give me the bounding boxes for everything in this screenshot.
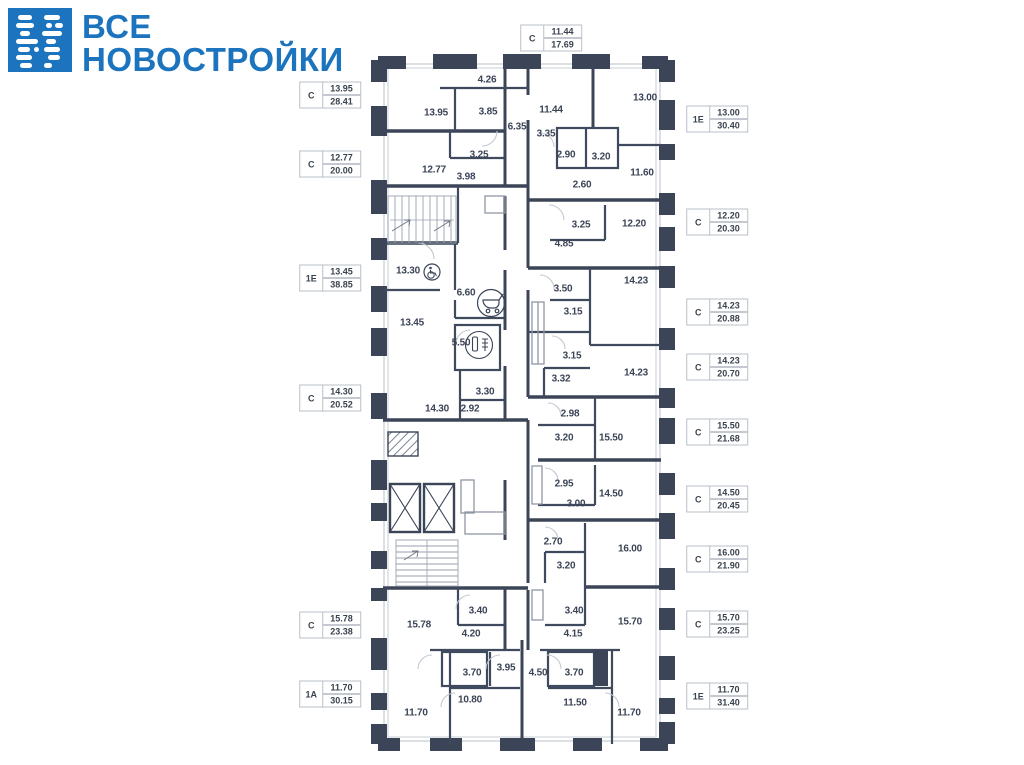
room-area-label: 14.30 (425, 404, 449, 415)
apartment-living-area: 11.44 (544, 26, 581, 39)
apartment-living-area: 13.45 (323, 266, 360, 279)
room-area-label: 16.00 (618, 544, 642, 555)
room-area-label: 3.15 (563, 351, 582, 362)
room-area-label: 4.15 (564, 629, 583, 640)
apartment-total-area: 31.40 (710, 697, 747, 709)
apartment-total-area: 30.40 (710, 120, 747, 132)
room-area-label: 15.70 (618, 617, 642, 628)
room-area-label: 11.60 (630, 168, 653, 179)
room-area-label: 13.30 (396, 266, 420, 277)
room-area-label: 11.50 (563, 698, 586, 709)
room-area-label: 3.20 (557, 561, 576, 572)
stairs-lower (396, 540, 458, 586)
room-area-label: 2.90 (557, 150, 576, 161)
room-area-label: 3.15 (564, 307, 583, 318)
apartment-total-area: 20.30 (710, 223, 747, 235)
apartment-living-area: 11.70 (323, 682, 360, 695)
apartment-areas: 11.7031.40 (710, 684, 747, 709)
apartment-living-area: 15.50 (710, 420, 747, 433)
room-area-label: 6.60 (457, 288, 476, 299)
apartment-living-area: 12.77 (323, 152, 360, 165)
room-area-label: 4.26 (478, 75, 497, 86)
room-area-label: 3.98 (457, 172, 476, 183)
apartment-living-area: 16.00 (710, 547, 747, 560)
apartment-total-area: 38.85 (323, 279, 360, 291)
apartment-label[interactable]: С15.7023.25 (686, 611, 748, 638)
apartment-total-area: 23.38 (323, 626, 360, 638)
apartment-total-area: 21.90 (710, 560, 747, 572)
apartment-label[interactable]: С13.9528.41 (299, 82, 361, 109)
room-area-label: 14.23 (624, 368, 648, 379)
apartment-living-area: 15.70 (710, 612, 747, 625)
apartment-type: С (687, 355, 710, 380)
apartment-type: С (687, 210, 710, 235)
room-area-label: 2.92 (461, 404, 480, 415)
stroller-icon (478, 290, 505, 317)
wheelchair-icon (424, 264, 440, 280)
room-area-label: 6.35 (508, 122, 527, 133)
room-area-label: 14.23 (624, 276, 648, 287)
apartment-total-area: 17.69 (544, 39, 581, 51)
apartment-label[interactable]: 1А11.7030.15 (299, 681, 361, 708)
apartment-living-area: 15.78 (323, 613, 360, 626)
apartment-areas: 14.5020.45 (710, 487, 747, 512)
stairs-upper (388, 196, 456, 243)
page: ВСЕ НОВОСТРОЙКИ (0, 0, 1024, 765)
floor-plan (0, 0, 1024, 765)
elevator-shafts (390, 484, 454, 532)
apartment-total-area: 20.45 (710, 500, 747, 512)
apartment-type: 1А (300, 682, 323, 707)
room-area-label: 13.45 (400, 318, 424, 329)
room-area-label: 3.00 (567, 499, 586, 510)
room-area-label: 4.50 (529, 668, 548, 679)
apartment-label[interactable]: 1Е11.7031.40 (686, 683, 748, 710)
apartment-label[interactable]: С12.7720.00 (299, 151, 361, 178)
room-area-label: 3.25 (572, 220, 591, 231)
apartment-label[interactable]: С15.7823.38 (299, 612, 361, 639)
apartment-type: С (300, 386, 323, 411)
apartment-total-area: 30.15 (323, 695, 360, 707)
apartment-type: С (687, 300, 710, 325)
apartment-type: С (687, 420, 710, 445)
room-area-label: 3.70 (463, 668, 482, 679)
room-area-label: 14.50 (599, 489, 623, 500)
room-area-label: 2.98 (561, 409, 580, 420)
apartment-areas: 11.7030.15 (323, 682, 360, 707)
apartment-areas: 14.2320.70 (710, 355, 747, 380)
room-area-label: 3.20 (555, 433, 574, 444)
room-area-label: 3.70 (565, 668, 584, 679)
hatched-shaft (388, 432, 418, 456)
apartment-type: 1Е (687, 107, 710, 132)
apartment-type: С (300, 83, 323, 108)
apartment-type: С (521, 26, 544, 51)
room-area-label: 2.95 (555, 479, 574, 490)
apartment-total-area: 20.52 (323, 399, 360, 411)
room-area-label: 12.77 (422, 165, 446, 176)
room-area-label: 4.85 (555, 239, 574, 250)
apartment-label[interactable]: 1Е13.4538.85 (299, 265, 361, 292)
wall-block (594, 650, 608, 686)
apartment-label[interactable]: С14.2320.88 (686, 299, 748, 326)
apartment-type: С (300, 613, 323, 638)
apartment-type: 1Е (300, 266, 323, 291)
room-area-label: 12.20 (622, 219, 646, 230)
room-area-label: 2.60 (573, 180, 592, 191)
apartment-areas: 14.3020.52 (323, 386, 360, 411)
apartment-areas: 16.0021.90 (710, 547, 747, 572)
apartment-living-area: 14.23 (710, 355, 747, 368)
apartment-label[interactable]: С14.5020.45 (686, 486, 748, 513)
room-area-label: 3.35 (537, 129, 556, 140)
room-area-label: 15.50 (599, 433, 623, 444)
apartment-areas: 15.5021.68 (710, 420, 747, 445)
room-area-label: 3.95 (497, 663, 516, 674)
apartment-total-area: 20.88 (710, 313, 747, 325)
apartment-living-area: 12.20 (710, 210, 747, 223)
apartment-label[interactable]: С11.4417.69 (520, 25, 582, 52)
apartment-areas: 15.7023.25 (710, 612, 747, 637)
room-area-label: 3.32 (552, 374, 571, 385)
apartment-total-area: 23.25 (710, 625, 747, 637)
room-area-label: 3.50 (554, 284, 573, 295)
apartment-label[interactable]: С14.3020.52 (299, 385, 361, 412)
room-area-label: 13.95 (424, 108, 448, 119)
apartment-living-area: 11.70 (710, 684, 747, 697)
room-area-label: 11.70 (404, 708, 427, 719)
apartment-areas: 14.2320.88 (710, 300, 747, 325)
apartment-total-area: 21.68 (710, 433, 747, 445)
apartment-label[interactable]: С14.2320.70 (686, 354, 748, 381)
apartment-type: С (687, 612, 710, 637)
apartment-label[interactable]: С12.2020.30 (686, 209, 748, 236)
room-area-label: 10.80 (458, 695, 482, 706)
apartment-areas: 12.7720.00 (323, 152, 360, 177)
apartment-type: С (687, 547, 710, 572)
apartment-areas: 13.9528.41 (323, 83, 360, 108)
apartment-total-area: 20.00 (323, 165, 360, 177)
apartment-label[interactable]: С16.0021.90 (686, 546, 748, 573)
apartment-areas: 12.2020.30 (710, 210, 747, 235)
room-area-label: 2.70 (544, 537, 563, 548)
apartment-areas: 13.4538.85 (323, 266, 360, 291)
apartment-type: С (300, 152, 323, 177)
apartment-total-area: 20.70 (710, 368, 747, 380)
room-area-label: 15.78 (407, 620, 431, 631)
apartment-areas: 15.7823.38 (323, 613, 360, 638)
room-area-label: 11.44 (539, 105, 562, 116)
apartment-living-area: 14.50 (710, 487, 747, 500)
apartment-label[interactable]: С15.5021.68 (686, 419, 748, 446)
apartment-type: С (687, 487, 710, 512)
room-area-label: 3.40 (565, 606, 584, 617)
room-area-label: 13.00 (633, 93, 657, 104)
apartment-areas: 11.4417.69 (544, 26, 581, 51)
apartment-label[interactable]: 1Е13.0030.40 (686, 106, 748, 133)
room-area-label: 3.40 (469, 606, 488, 617)
apartment-living-area: 13.00 (710, 107, 747, 120)
room-area-label: 11.70 (617, 708, 640, 719)
apartment-type: 1Е (687, 684, 710, 709)
apartment-areas: 13.0030.40 (710, 107, 747, 132)
room-area-label: 3.25 (470, 150, 489, 161)
room-area-label: 3.30 (476, 387, 495, 398)
apartment-living-area: 13.95 (323, 83, 360, 96)
apartment-living-area: 14.30 (323, 386, 360, 399)
apartment-total-area: 28.41 (323, 96, 360, 108)
room-area-label: 3.20 (592, 152, 611, 163)
room-area-label: 3.85 (479, 107, 498, 118)
room-area-label: 4.20 (462, 629, 481, 640)
apartment-living-area: 14.23 (710, 300, 747, 313)
room-area-label: 5.50 (452, 338, 471, 349)
